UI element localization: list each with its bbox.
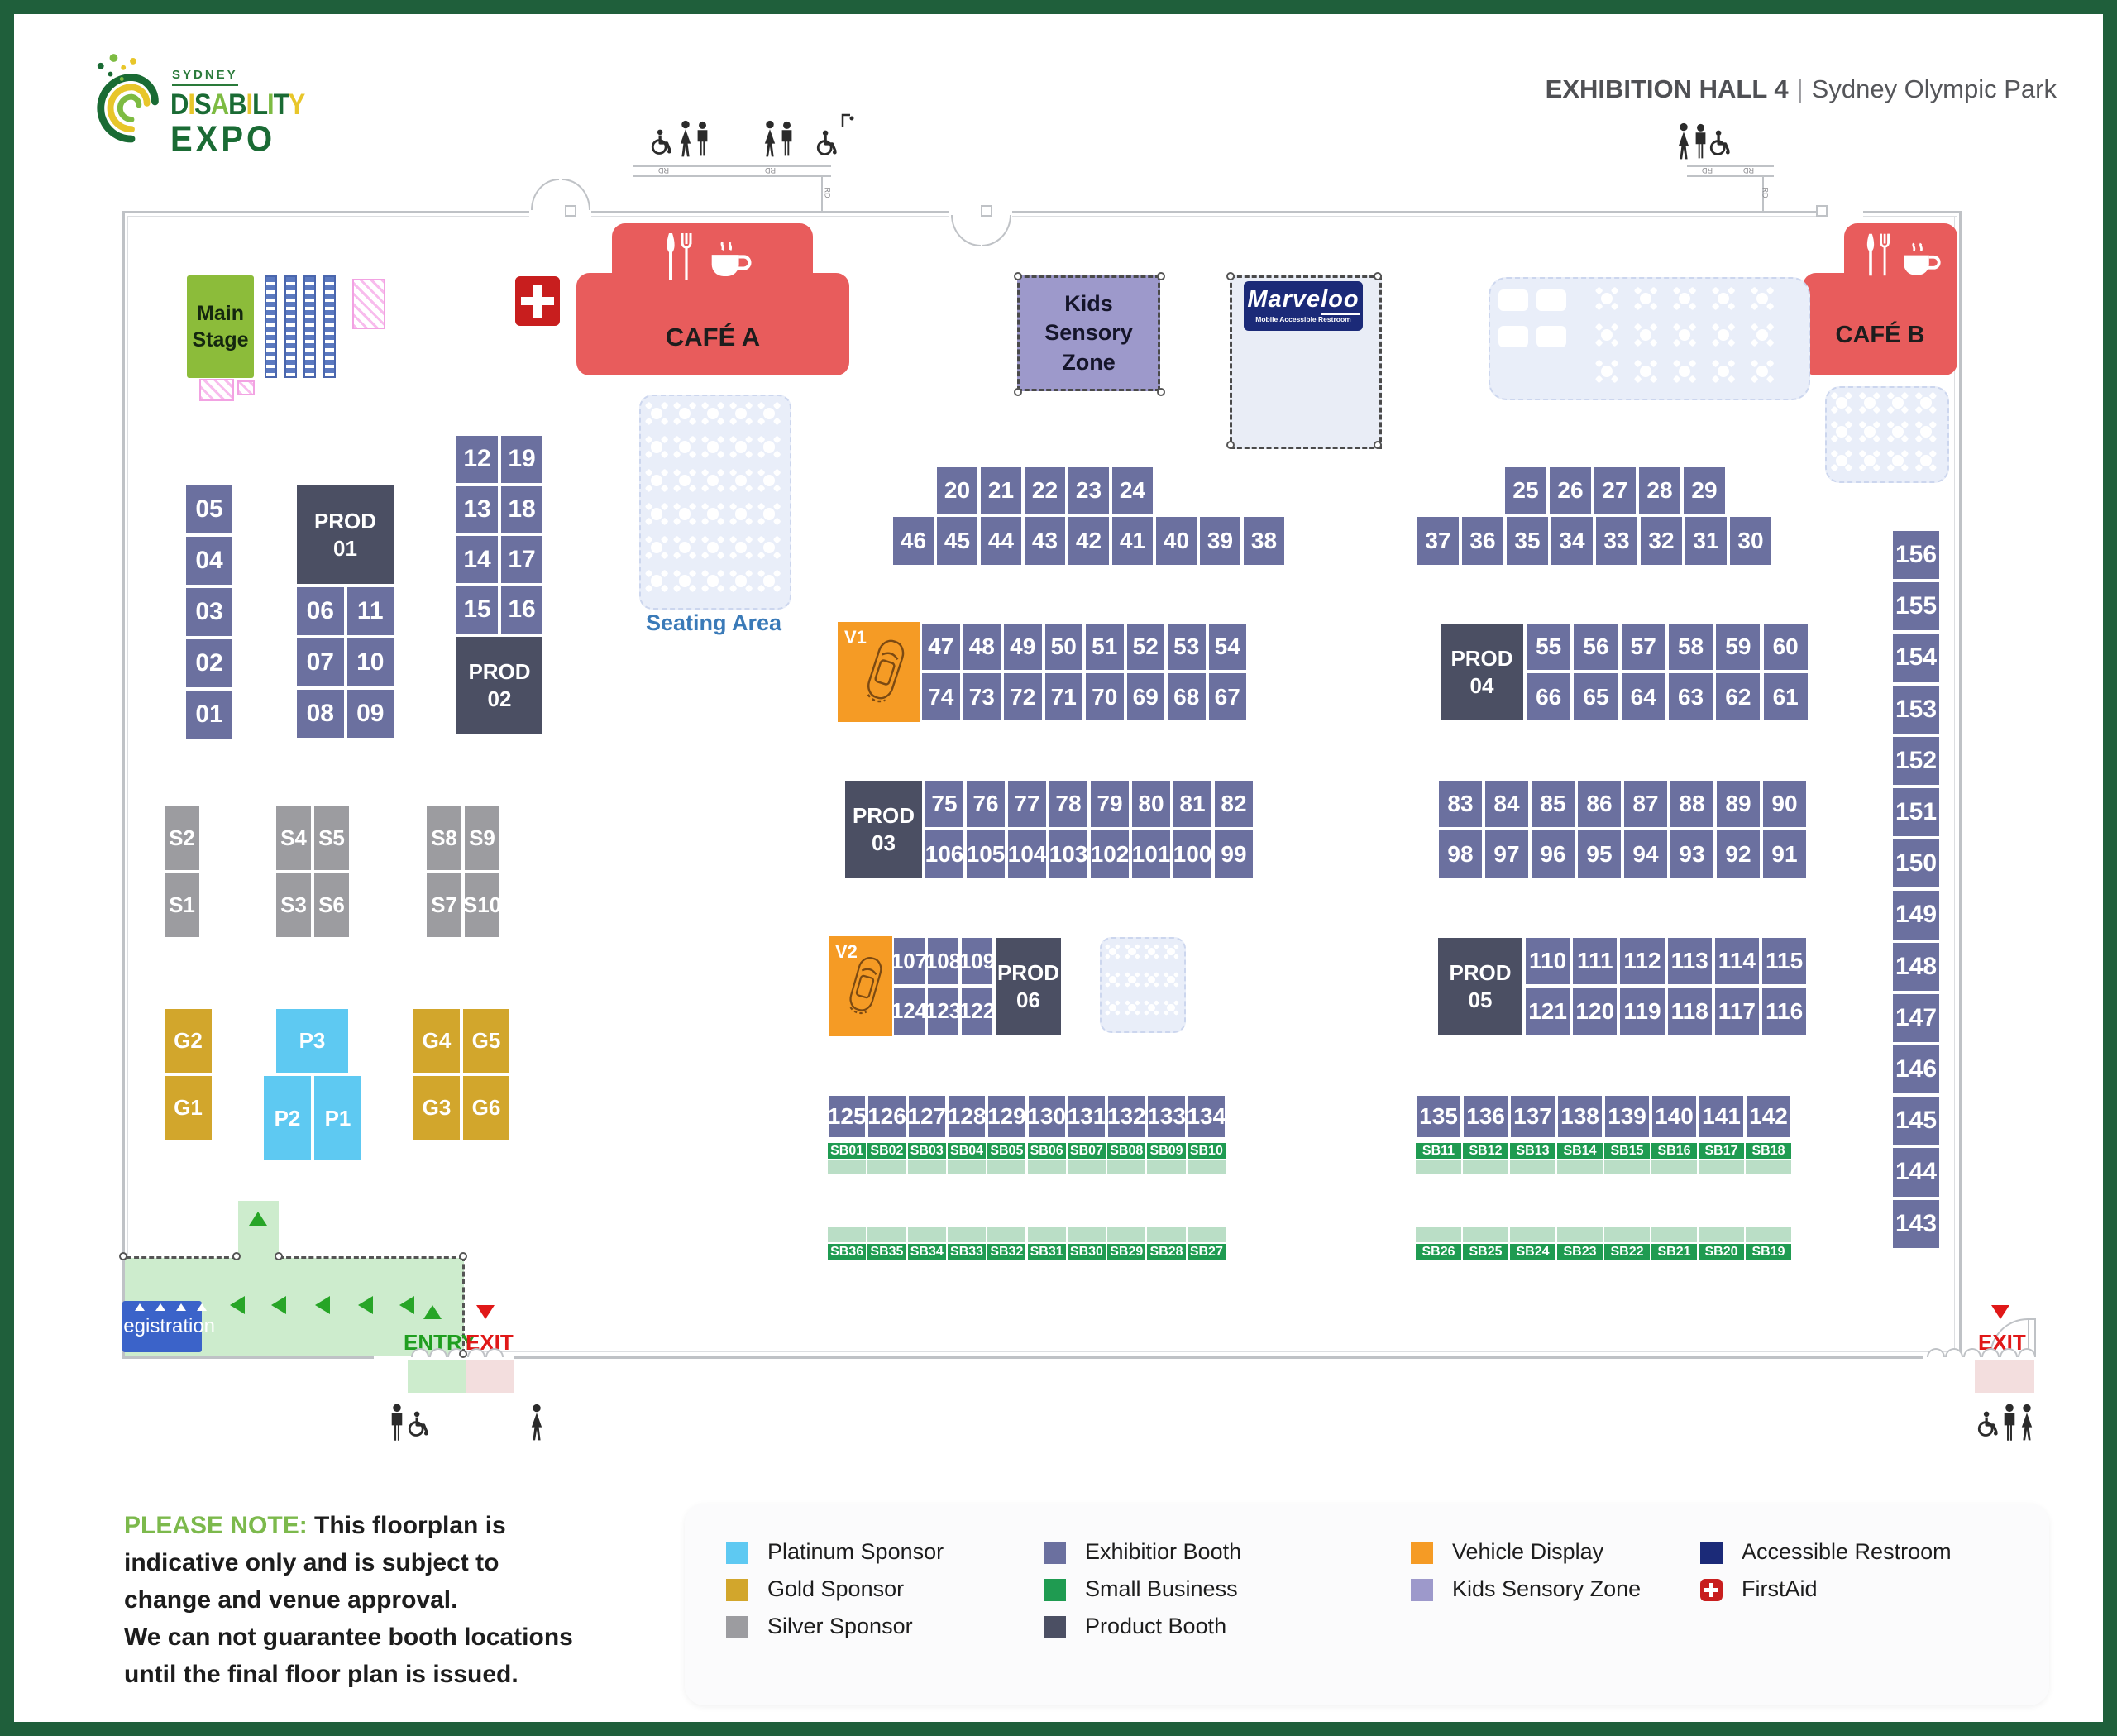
hall-name: EXHIBITION HALL 4 (1546, 74, 1789, 103)
booth-53: 53 (1166, 622, 1207, 672)
table-icon (1751, 324, 1773, 346)
v1-label: V1 (844, 627, 867, 648)
booth-SB23: SB23 (1556, 1243, 1603, 1261)
table-icon (674, 571, 695, 592)
table-icon (1106, 945, 1120, 959)
table-icon (758, 437, 780, 458)
booth-SB35: SB35 (867, 1243, 906, 1261)
zone-pin-icon (1157, 272, 1165, 280)
booth-08: 08 (295, 688, 346, 739)
booth-S4: S4 (275, 805, 313, 872)
table-icon (674, 504, 695, 525)
logo-word1: DISABILITY (170, 88, 304, 122)
booth-105: 105 (965, 829, 1006, 879)
sb-band (1067, 1227, 1106, 1243)
booth-114: 114 (1713, 936, 1761, 986)
booth-P1: P1 (313, 1074, 363, 1162)
table-icon (1832, 422, 1852, 442)
table-icon (1164, 945, 1178, 959)
legend-swatch-small-business (1044, 1579, 1066, 1601)
vehicle-display-v2: V2 (829, 936, 892, 1036)
booth-68: 68 (1166, 672, 1207, 722)
sb-band (1027, 1227, 1067, 1243)
booth-SB31: SB31 (1027, 1243, 1067, 1261)
booth-13: 13 (455, 485, 499, 535)
wall-right-inner (1954, 216, 1955, 1354)
corridor-pin-icon (459, 1252, 467, 1260)
coffee-cup-icon (708, 240, 753, 280)
venue-name: Sydney Olympic Park (1812, 74, 2057, 103)
booth-136: 136 (1462, 1094, 1509, 1139)
booth-01: 01 (184, 689, 234, 740)
booth-S7: S7 (425, 872, 463, 939)
zone-pin-icon (1014, 388, 1022, 396)
table-icon (1164, 1001, 1178, 1015)
table-icon (1674, 324, 1695, 346)
exit-arrow-icon (476, 1305, 495, 1319)
legend-swatch-product-booth (1044, 1616, 1066, 1638)
rect-table-icon (1536, 289, 1566, 311)
booth-SB26: SB26 (1415, 1243, 1462, 1261)
booth-42: 42 (1067, 515, 1111, 567)
table-icon (702, 504, 724, 525)
table-icon (730, 537, 752, 558)
booth-29: 29 (1682, 466, 1727, 515)
hatched-area (199, 379, 234, 401)
coffee-cup-icon (1900, 242, 1942, 278)
legend-label: Vehicle Display (1452, 1539, 1603, 1565)
legend-swatch-gold-sponsor (726, 1579, 748, 1601)
booth-126: 126 (867, 1094, 906, 1139)
booth-38: 38 (1242, 515, 1286, 567)
booth-102: 102 (1089, 829, 1130, 879)
woman-icon (2019, 1404, 2034, 1442)
wheelchair-icon (1708, 126, 1732, 160)
table-icon (646, 571, 667, 592)
booth-94: 94 (1622, 829, 1669, 879)
booth-SB27: SB27 (1187, 1243, 1226, 1261)
booth-16: 16 (499, 585, 544, 635)
sb-band (907, 1227, 947, 1243)
booth-95: 95 (1576, 829, 1622, 879)
booth-SB02: SB02 (867, 1142, 906, 1160)
booth-06: 06 (295, 586, 346, 637)
booth-142: 142 (1745, 1094, 1792, 1139)
booth-SB03: SB03 (907, 1142, 947, 1160)
booth-134: 134 (1187, 1094, 1226, 1139)
woman-icon (678, 119, 693, 159)
table-icon (1751, 288, 1773, 309)
booth-74: 74 (920, 672, 962, 722)
legend-label: Exhibitior Booth (1085, 1539, 1241, 1565)
table-icon (730, 571, 752, 592)
booth-96: 96 (1530, 829, 1576, 879)
product-booth-04: PROD 04 (1439, 622, 1525, 722)
booth-S9: S9 (463, 805, 501, 872)
booth-103: 103 (1048, 829, 1089, 879)
booth-SB30: SB30 (1067, 1243, 1106, 1261)
booth-113: 113 (1666, 936, 1713, 986)
booth-61: 61 (1762, 672, 1809, 722)
booth-SB09: SB09 (1146, 1142, 1186, 1160)
zone-pin-icon (1157, 388, 1165, 396)
booth-17: 17 (499, 534, 544, 585)
woman-icon (762, 119, 777, 159)
booth-27: 27 (1593, 466, 1637, 515)
marveloo-logo: Marveloo Mobile Accessible Restroom (1244, 281, 1363, 331)
booth-S6: S6 (313, 872, 351, 939)
sb-band (1556, 1227, 1603, 1243)
rd-wall-label: RD (1743, 166, 1754, 175)
legend-label: Silver Sponsor (767, 1614, 913, 1639)
booth-152: 152 (1891, 735, 1941, 787)
expo-logo: SYDNEY DISABILITY EXPO (91, 40, 389, 176)
table-icon (674, 437, 695, 458)
hatched-area (237, 380, 255, 395)
rect-table-icon (1498, 326, 1528, 347)
booth-P2: P2 (262, 1074, 313, 1162)
legend-label: Kids Sensory Zone (1452, 1576, 1641, 1602)
wheelchair-icon (650, 124, 673, 160)
booth-151: 151 (1891, 787, 1941, 838)
booth-128: 128 (947, 1094, 987, 1139)
booth-78: 78 (1048, 779, 1089, 829)
direction-arrow-left-icon (230, 1296, 245, 1314)
booth-118: 118 (1666, 986, 1713, 1036)
booth-SB08: SB08 (1106, 1142, 1146, 1160)
booth-10: 10 (346, 637, 396, 688)
legend-swatch-platinum-sponsor (726, 1542, 748, 1564)
booth-124: 124 (892, 986, 926, 1036)
zone-pin-icon (1226, 272, 1235, 280)
booth-34: 34 (1550, 515, 1594, 567)
booth-S10: S10 (463, 872, 501, 939)
sb-band (1698, 1160, 1745, 1174)
table-icon (1860, 393, 1880, 413)
booth-15: 15 (455, 585, 499, 635)
rd-wall-label: RD (824, 188, 832, 198)
booth-147: 147 (1891, 992, 1941, 1044)
table-icon (758, 537, 780, 558)
rect-table-icon (1498, 289, 1528, 311)
booth-54: 54 (1207, 622, 1249, 672)
booth-G1: G1 (163, 1074, 213, 1141)
sb-band (1187, 1227, 1226, 1243)
booth-G2: G2 (163, 1007, 213, 1074)
hoist-icon (840, 112, 857, 129)
booth-65: 65 (1572, 672, 1619, 722)
sb-band (1745, 1227, 1792, 1243)
booth-109: 109 (960, 936, 994, 986)
table-icon (1674, 361, 1695, 382)
corridor-pin-icon (232, 1252, 241, 1260)
booth-81: 81 (1172, 779, 1213, 829)
table-icon (1713, 324, 1734, 346)
booth-141: 141 (1698, 1094, 1745, 1139)
corridor-pin-icon (275, 1252, 283, 1260)
booth-138: 138 (1556, 1094, 1603, 1139)
booth-22: 22 (1023, 466, 1067, 515)
product-booth-02: PROD 02 (455, 635, 544, 735)
sb-band (1146, 1227, 1186, 1243)
booth-85: 85 (1530, 779, 1576, 829)
table-icon (730, 437, 752, 458)
booth-48: 48 (962, 622, 1003, 672)
sb-band (907, 1160, 947, 1174)
booth-36: 36 (1460, 515, 1505, 567)
booth-SB24: SB24 (1509, 1243, 1556, 1261)
booth-07: 07 (295, 637, 346, 688)
alcove-wall (1687, 165, 1774, 167)
first-aid-cross-icon (521, 297, 554, 305)
rd-wall-label: RD (1761, 188, 1770, 198)
booth-45: 45 (935, 515, 979, 567)
direction-arrow-left-icon (358, 1296, 373, 1314)
table-icon (702, 571, 724, 592)
table-icon (758, 504, 780, 525)
booth-58: 58 (1667, 622, 1714, 672)
booth-G6: G6 (461, 1074, 511, 1141)
booth-149: 149 (1891, 889, 1941, 940)
table-icon (1916, 422, 1936, 442)
booth-70: 70 (1084, 672, 1125, 722)
tick-arrow-icon (197, 1303, 207, 1311)
marveloo-name: Marveloo (1244, 286, 1363, 313)
booth-12: 12 (455, 434, 499, 485)
booth-S1: S1 (163, 872, 201, 939)
booth-140: 140 (1651, 1094, 1698, 1139)
page-title: EXHIBITION HALL 4|Sydney Olympic Park (1546, 74, 2057, 104)
exit-door-area (466, 1360, 514, 1393)
booth-11: 11 (346, 586, 396, 637)
table-icon (1888, 422, 1908, 442)
booth-116: 116 (1761, 986, 1808, 1036)
booth-69: 69 (1125, 672, 1167, 722)
wall-left-inner (127, 216, 128, 1354)
sb-band (1462, 1227, 1509, 1243)
door-swing-arc-icon (531, 179, 559, 210)
sb-band (987, 1160, 1026, 1174)
booth-143: 143 (1891, 1198, 1941, 1250)
alcove-wall (1687, 175, 1774, 177)
booth-50: 50 (1044, 622, 1085, 672)
entry-arrow-icon (423, 1305, 442, 1319)
booth-G5: G5 (461, 1007, 511, 1074)
cafe-b-label: CAFÉ B (1803, 318, 1957, 352)
table-icon (1751, 361, 1773, 382)
booth-39: 39 (1198, 515, 1242, 567)
wheelchair-icon (1976, 1406, 2000, 1442)
audience-bench (323, 275, 336, 378)
legend-label: Product Booth (1085, 1614, 1226, 1639)
table-icon (1916, 451, 1936, 471)
booth-125: 125 (827, 1094, 867, 1139)
sb-band (1067, 1160, 1106, 1174)
man-icon (390, 1404, 404, 1442)
man-icon (2003, 1404, 2016, 1442)
booth-44: 44 (979, 515, 1023, 567)
product-booth-01: PROD 01 (295, 484, 395, 586)
table-icon (1860, 451, 1880, 471)
door-swing-arc-icon (562, 179, 590, 210)
booth-28: 28 (1637, 466, 1682, 515)
sb-band (1106, 1227, 1146, 1243)
booth-72: 72 (1002, 672, 1044, 722)
corridor-pin-icon (459, 1350, 467, 1358)
direction-arrow-left-icon (271, 1296, 286, 1314)
booth-123: 123 (926, 986, 960, 1036)
booth-63: 63 (1667, 672, 1714, 722)
booth-115: 115 (1761, 936, 1808, 986)
booth-57: 57 (1620, 622, 1667, 672)
table-icon (1596, 288, 1618, 309)
booth-86: 86 (1576, 779, 1622, 829)
booth-145: 145 (1891, 1095, 1941, 1146)
table-icon (1596, 361, 1618, 382)
sb-band (1698, 1227, 1745, 1243)
booth-09: 09 (346, 688, 396, 739)
alcove-wall (633, 175, 831, 177)
woman-icon (1676, 122, 1691, 160)
tick-arrow-icon (135, 1303, 145, 1311)
sb-band (1651, 1160, 1698, 1174)
direction-arrow-left-icon (399, 1296, 414, 1314)
booth-76: 76 (965, 779, 1006, 829)
booth-90: 90 (1761, 779, 1808, 829)
utensils-icon (1863, 232, 1893, 277)
booth-SB05: SB05 (987, 1142, 1026, 1160)
door-hinge-icon (1816, 205, 1828, 217)
table-icon (1713, 361, 1734, 382)
product-booth-03: PROD 03 (843, 779, 924, 879)
table-icon (646, 537, 667, 558)
booth-101: 101 (1130, 829, 1172, 879)
legend-swatch-silver-sponsor (726, 1616, 748, 1638)
booth-SB33: SB33 (947, 1243, 987, 1261)
booth-104: 104 (1006, 829, 1048, 879)
booth-46: 46 (891, 515, 935, 567)
booth-110: 110 (1524, 936, 1571, 986)
booth-SB07: SB07 (1067, 1142, 1106, 1160)
table-icon (702, 470, 724, 491)
rd-wall-label: RD (1702, 166, 1713, 175)
booth-75: 75 (924, 779, 965, 829)
booth-SB16: SB16 (1651, 1142, 1698, 1160)
booth-148: 148 (1891, 941, 1941, 992)
door-swing-arc-icon (982, 215, 1011, 246)
booth-133: 133 (1146, 1094, 1186, 1139)
booth-108: 108 (926, 936, 960, 986)
booth-SB29: SB29 (1106, 1243, 1146, 1261)
zone-pin-icon (1374, 441, 1382, 449)
corridor-dashed-line (279, 1256, 464, 1259)
booth-67: 67 (1207, 672, 1249, 722)
booth-40: 40 (1154, 515, 1198, 567)
table-icon (702, 437, 724, 458)
man-icon (696, 119, 709, 159)
booth-82: 82 (1213, 779, 1254, 829)
booth-21: 21 (979, 466, 1023, 515)
booth-SB15: SB15 (1603, 1142, 1651, 1160)
door-gap (1822, 208, 1863, 218)
booth-02: 02 (184, 638, 234, 689)
booth-04: 04 (184, 535, 234, 586)
booth-S8: S8 (425, 805, 463, 872)
booth-99: 99 (1213, 829, 1254, 879)
booth-14: 14 (455, 534, 499, 585)
sb-band (867, 1160, 906, 1174)
expo-logo-spiral-icon (91, 51, 172, 145)
booth-71: 71 (1044, 672, 1085, 722)
booth-30: 30 (1728, 515, 1773, 567)
sb-band (827, 1160, 867, 1174)
table-icon (730, 504, 752, 525)
table-icon (758, 571, 780, 592)
booth-120: 120 (1571, 986, 1618, 1036)
table-icon (1832, 393, 1852, 413)
sb-band (987, 1227, 1026, 1243)
sb-band (1745, 1160, 1792, 1174)
cafe-a-label: CAFÉ A (576, 321, 849, 354)
sb-band (1462, 1160, 1509, 1174)
booth-49: 49 (1002, 622, 1044, 672)
table-icon (1888, 393, 1908, 413)
booth-SB17: SB17 (1698, 1142, 1745, 1160)
seating-area-label: Seating Area (639, 610, 788, 636)
booth-05: 05 (184, 484, 234, 535)
legend-label: Gold Sponsor (767, 1576, 904, 1602)
product-booth-05: PROD 05 (1436, 936, 1524, 1036)
booth-107: 107 (892, 936, 926, 986)
entry-door-area (408, 1360, 466, 1393)
booth-117: 117 (1713, 986, 1761, 1036)
booth-111: 111 (1571, 936, 1618, 986)
booth-SB04: SB04 (947, 1142, 987, 1160)
table-icon (702, 537, 724, 558)
sb-band (947, 1227, 987, 1243)
booth-SB19: SB19 (1745, 1243, 1792, 1261)
table-icon (674, 403, 695, 424)
legend-label: Small Business (1085, 1576, 1238, 1602)
booth-137: 137 (1509, 1094, 1556, 1139)
booth-73: 73 (962, 672, 1003, 722)
booth-59: 59 (1714, 622, 1761, 672)
booth-153: 153 (1891, 684, 1941, 735)
table-icon (1106, 1001, 1120, 1015)
booth-03: 03 (184, 586, 234, 638)
woman-icon (529, 1404, 544, 1442)
table-icon (1125, 945, 1140, 959)
booth-79: 79 (1089, 779, 1130, 829)
rect-table-icon (1536, 326, 1566, 347)
wall-left (122, 211, 125, 1359)
booth-SB12: SB12 (1462, 1142, 1509, 1160)
table-icon (1125, 1001, 1140, 1015)
table-icon (674, 537, 695, 558)
folding-door-arc-icon (1927, 1348, 1945, 1357)
booth-P3: P3 (275, 1007, 350, 1074)
booth-G4: G4 (412, 1007, 461, 1074)
booth-23: 23 (1067, 466, 1111, 515)
zone-pin-icon (1226, 441, 1235, 449)
audience-bench (265, 275, 277, 378)
tick-arrow-icon (176, 1303, 186, 1311)
table-icon (730, 403, 752, 424)
booth-119: 119 (1618, 986, 1665, 1036)
legend-swatch-exhibitior-booth (1044, 1542, 1066, 1564)
booth-132: 132 (1106, 1094, 1146, 1139)
legend-label: Platinum Sponsor (767, 1539, 944, 1565)
